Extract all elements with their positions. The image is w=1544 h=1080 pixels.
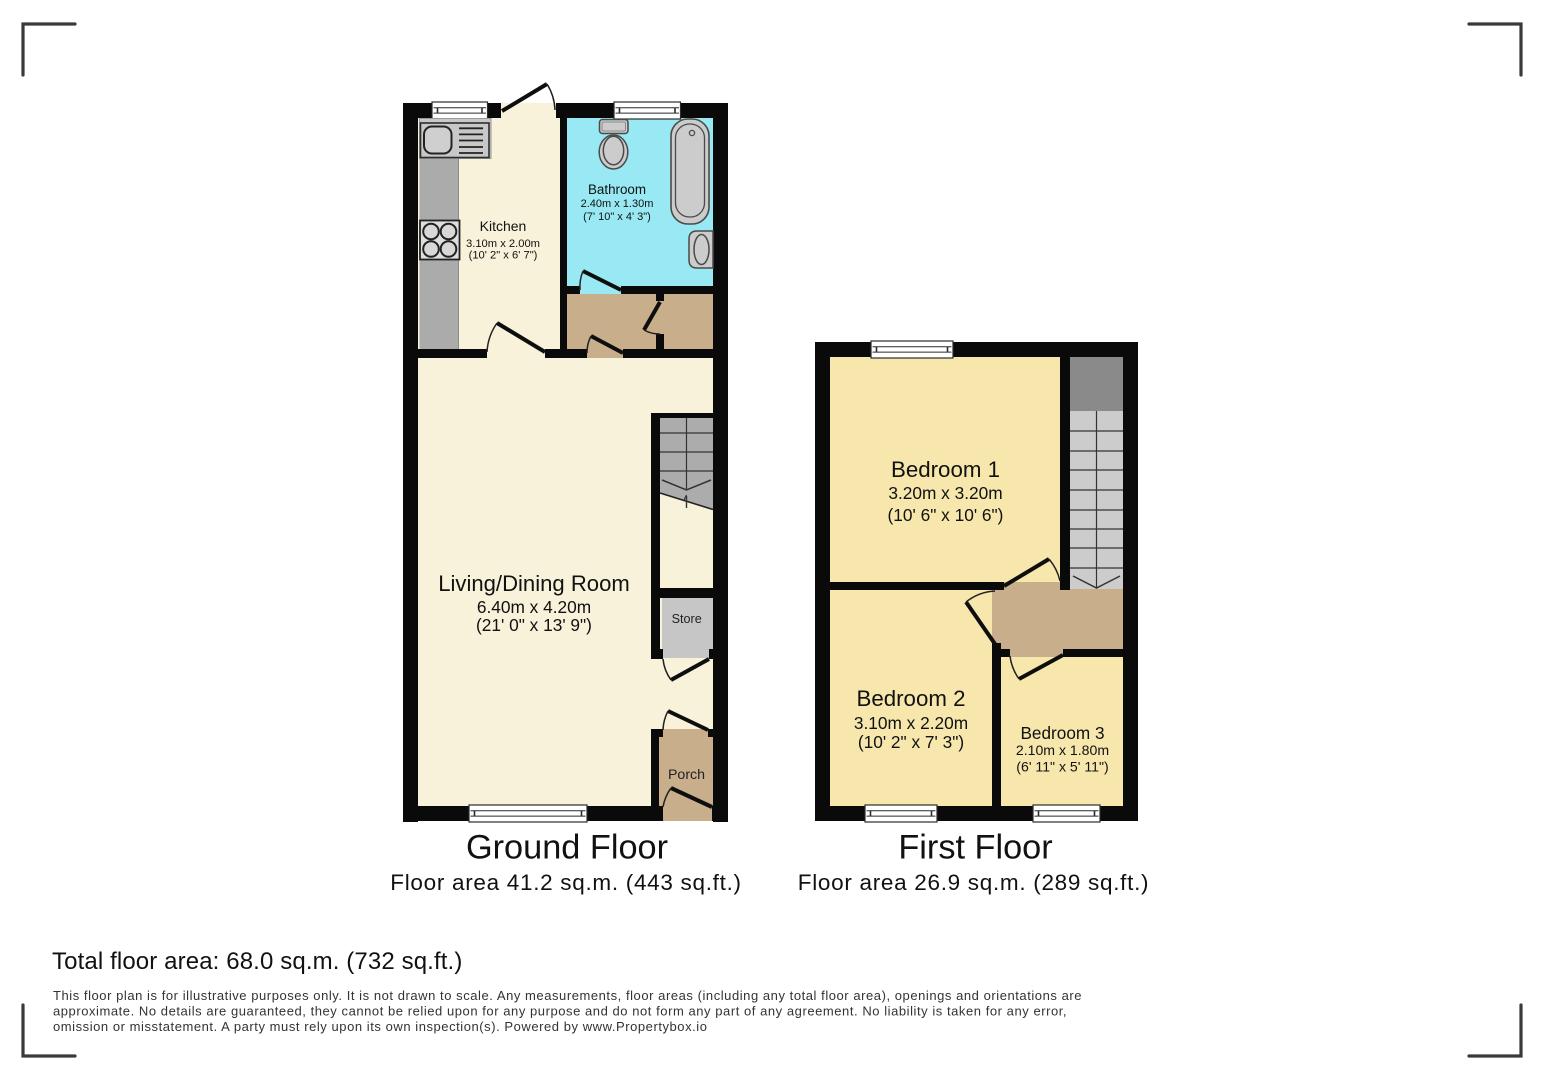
svg-text:Porch: Porch [668, 767, 705, 783]
svg-text:(10' 6" x 10' 6"): (10' 6" x 10' 6") [888, 505, 1004, 525]
svg-text:approximate. No details are gu: approximate. No details are guaranteed, … [53, 1004, 1067, 1019]
svg-text:Bedroom 1: Bedroom 1 [891, 457, 1000, 482]
svg-text:6.40m x 4.20m: 6.40m x 4.20m [477, 597, 591, 617]
svg-text:Bedroom 3: Bedroom 3 [1020, 723, 1104, 743]
svg-text:(10' 2" x 7' 3"): (10' 2" x 7' 3") [858, 732, 964, 752]
svg-text:3.10m x 2.00m: 3.10m x 2.00m [466, 238, 540, 250]
svg-text:(7' 10" x 4' 3"): (7' 10" x 4' 3") [583, 211, 651, 223]
svg-text:(6' 11" x 5' 11"): (6' 11" x 5' 11") [1016, 759, 1108, 775]
svg-text:First Floor: First Floor [898, 829, 1052, 867]
svg-text:2.10m x 1.80m: 2.10m x 1.80m [1016, 742, 1109, 758]
svg-text:This floor plan is for illustr: This floor plan is for illustrative purp… [53, 988, 1082, 1003]
svg-text:2.40m x 1.30m: 2.40m x 1.30m [581, 198, 654, 210]
svg-text:3.20m x 3.20m: 3.20m x 3.20m [888, 483, 1002, 503]
svg-text:(10' 2" x 6' 7"): (10' 2" x 6' 7") [469, 250, 538, 262]
svg-text:Ground Floor: Ground Floor [466, 829, 668, 867]
svg-text:Bathroom: Bathroom [588, 182, 646, 197]
svg-text:Living/Dining Room: Living/Dining Room [438, 571, 630, 596]
svg-text:Store: Store [672, 612, 702, 626]
svg-text:Floor area 26.9 sq.m. (289 sq.: Floor area 26.9 sq.m. (289 sq.ft.) [798, 870, 1149, 895]
svg-text:omission or misstatement. A pa: omission or misstatement. A party must r… [53, 1019, 708, 1034]
svg-text:Kitchen: Kitchen [480, 218, 527, 234]
svg-text:Floor area 41.2 sq.m. (443 sq.: Floor area 41.2 sq.m. (443 sq.ft.) [390, 870, 741, 895]
svg-text:(21' 0" x 13' 9"): (21' 0" x 13' 9") [476, 615, 592, 635]
svg-text:3.10m x 2.20m: 3.10m x 2.20m [854, 713, 968, 733]
svg-text:Total floor area: 68.0 sq.m. (: Total floor area: 68.0 sq.m. (732 sq.ft.… [52, 948, 462, 975]
svg-text:Bedroom 2: Bedroom 2 [856, 686, 965, 711]
